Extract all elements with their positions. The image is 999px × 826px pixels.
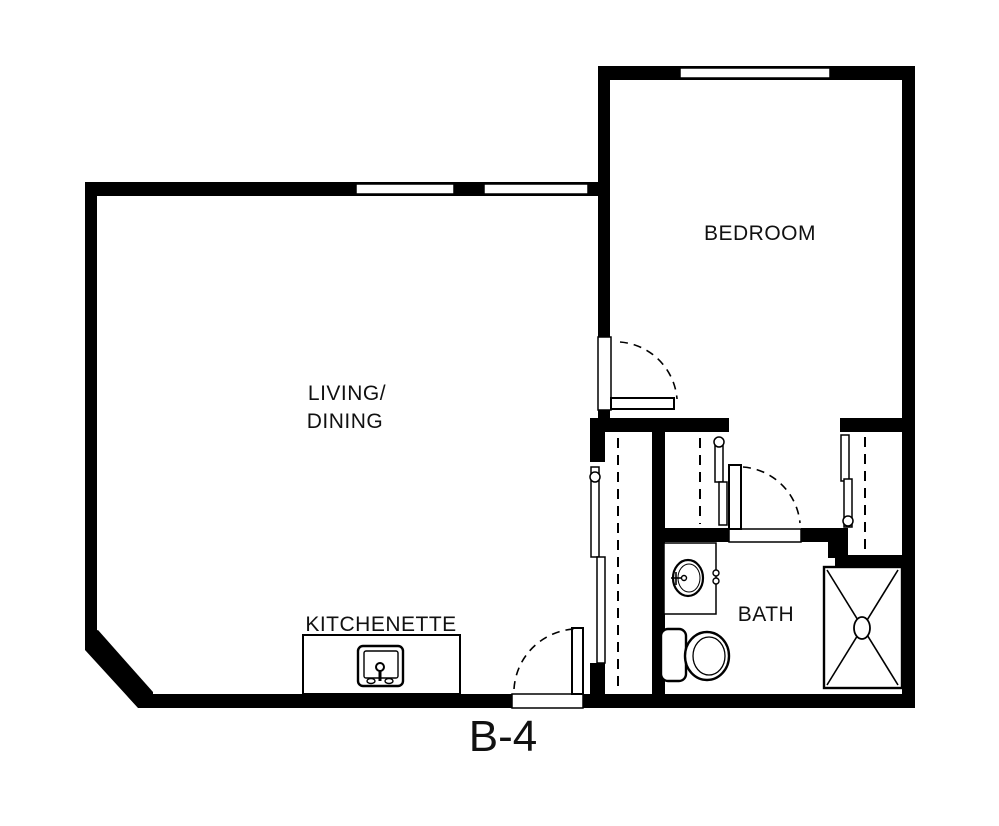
bath-door-leaf xyxy=(729,465,741,529)
wall-bottom-left xyxy=(140,694,512,708)
windows xyxy=(356,68,830,194)
floor-plan: BEDROOM LIVING/ DINING KITCHENETTE BATH … xyxy=(0,0,999,826)
wall-bath-top-left xyxy=(665,528,729,542)
bath-label: BATH xyxy=(738,604,794,625)
bath-door-swing xyxy=(743,467,800,523)
closet-right-panel-1 xyxy=(841,435,849,481)
floor-plan-drawing xyxy=(0,0,999,826)
unit-plan-title: B-4 xyxy=(469,715,537,759)
entry-door-swing xyxy=(514,629,575,689)
closet-middle-pull xyxy=(714,437,724,447)
entry-door-opening xyxy=(512,694,583,708)
kitchen-faucet-handle-right xyxy=(385,679,393,684)
toilet xyxy=(661,629,729,681)
wall-closet-front-lower xyxy=(590,663,605,694)
bedroom-label: BEDROOM xyxy=(704,223,816,244)
wall-bottom-right xyxy=(583,694,915,708)
closet-middle-panel-2 xyxy=(719,482,727,525)
bedroom-door-opening xyxy=(598,337,611,410)
wall-bedroom-bottom-right xyxy=(840,418,902,432)
entry-door-leaf xyxy=(572,628,583,694)
bathroom-sink-counter xyxy=(664,543,719,614)
shower-drain xyxy=(854,617,870,639)
living-dining-label-line1: LIVING/ xyxy=(308,383,386,404)
window-living-2 xyxy=(484,184,588,194)
closet-right-pull xyxy=(843,516,853,526)
kitchen-faucet-base xyxy=(376,663,384,671)
bedroom-door-leaf xyxy=(611,398,674,409)
window-bedroom xyxy=(680,68,830,78)
wall-bedroom-left-upper xyxy=(598,66,610,337)
bathroom-faucet-knob xyxy=(682,576,687,581)
window-living-1 xyxy=(356,184,454,194)
bath-door-opening xyxy=(729,529,801,542)
wall-left xyxy=(85,182,97,640)
bedroom-door xyxy=(598,337,677,410)
closet-left-panel-2 xyxy=(597,557,605,663)
counter-hinge-bottom xyxy=(713,578,719,584)
bath-door xyxy=(729,465,801,542)
living-dining-label-line2: DINING xyxy=(307,411,384,432)
kitchenette-label: KITCHENETTE xyxy=(305,614,456,635)
wall-bath-top-right xyxy=(801,528,848,542)
toilet-bowl xyxy=(685,632,729,680)
entry-door xyxy=(512,628,583,708)
closet-left-pull xyxy=(590,472,600,482)
wall-closet-front-upper xyxy=(590,432,605,462)
kitchen-faucet-handle-left xyxy=(367,679,375,684)
wall-right xyxy=(902,66,915,708)
closet-middle-panel-1 xyxy=(715,443,723,482)
kitchen-sink xyxy=(303,635,460,694)
bedroom-door-swing xyxy=(620,342,677,399)
toilet-tank xyxy=(661,629,686,681)
counter-hinge-top xyxy=(713,570,719,576)
shower xyxy=(824,567,902,688)
